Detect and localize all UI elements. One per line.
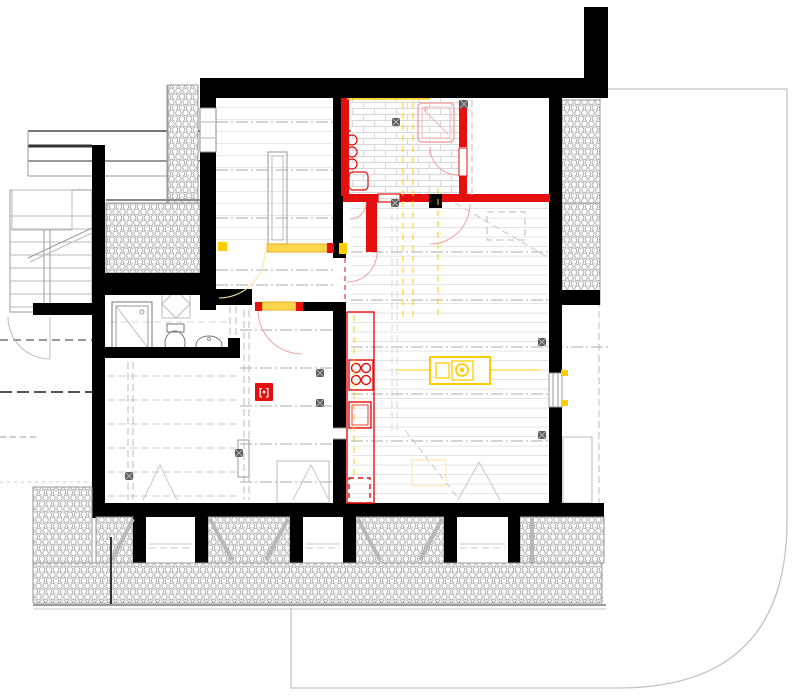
survey-dashed-lines: [0, 340, 92, 482]
wall-east-upper: [549, 98, 562, 373]
bath-north-wall-a: [216, 289, 252, 305]
survey-marker-glyph: [•]: [259, 388, 269, 399]
window-jamb-marker: [561, 370, 568, 376]
stair-door-arc: [8, 317, 50, 359]
red-wall-south-a: [343, 194, 378, 202]
divider-lower: [333, 302, 346, 503]
jamb-marker: [218, 242, 227, 251]
east-lightwell-outline: [563, 437, 592, 503]
red-wall-east-b: [459, 176, 467, 196]
east-outer-stub: [562, 290, 600, 305]
exterior-stair: [8, 190, 92, 359]
west-window: [200, 108, 216, 152]
wall-west-lower: [92, 145, 105, 503]
courtyard-hatch: [106, 203, 200, 273]
survey-marker: [•]: [255, 383, 273, 401]
red-wall-south-b: [400, 194, 550, 202]
kitchen-masonry-floor: [351, 98, 459, 203]
room-nw-floor: [216, 98, 333, 243]
threshold-1: [267, 244, 327, 252]
threshold-2: [262, 302, 296, 310]
stair-south-wall: [33, 303, 92, 315]
window-jamb-marker2: [561, 400, 568, 406]
floor-plan-drawing: [•]: [0, 0, 804, 700]
bath-north-wall-b: [298, 302, 333, 311]
east-window: [549, 373, 562, 407]
red-wall-pier: [429, 194, 442, 208]
bath-south-wall: [92, 347, 240, 358]
red-wall-closet: [366, 202, 377, 252]
floor-plan: [•]: [0, 0, 804, 700]
wall-south: [92, 503, 604, 518]
east-hatch-lower: [562, 203, 600, 291]
red-door-jamb: [459, 148, 467, 176]
wall-north-stub: [584, 7, 608, 78]
living-room-floor: [351, 203, 549, 503]
wall-north: [200, 78, 608, 98]
shower-drain: [140, 310, 144, 314]
wall-east-lower: [549, 407, 562, 503]
hall-door-arc: [258, 310, 302, 354]
porch-south-wall: [92, 273, 216, 295]
red-wall-west: [341, 98, 349, 196]
divider-door-gap: [333, 428, 346, 439]
east-hatch-upper: [562, 100, 600, 203]
west-hatch-strip: [168, 85, 198, 203]
foundation-strip: [33, 563, 602, 603]
bath-east-stub: [228, 338, 240, 358]
